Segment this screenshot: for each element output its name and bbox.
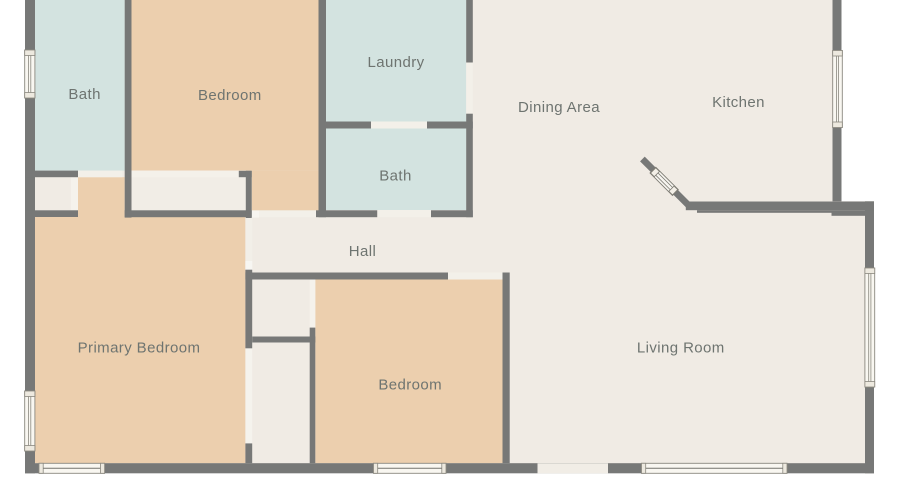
svg-text:Kitchen: Kitchen xyxy=(712,94,765,111)
svg-text:Bedroom: Bedroom xyxy=(378,377,442,394)
svg-text:Laundry: Laundry xyxy=(367,54,424,71)
svg-text:Living Room: Living Room xyxy=(637,340,725,357)
svg-text:Bath: Bath xyxy=(379,168,411,185)
svg-text:Dining Area: Dining Area xyxy=(518,99,600,116)
svg-text:Primary Bedroom: Primary Bedroom xyxy=(78,339,201,356)
svg-text:Hall: Hall xyxy=(349,243,376,260)
svg-text:Bedroom: Bedroom xyxy=(198,87,262,104)
svg-text:Bath: Bath xyxy=(68,86,100,103)
